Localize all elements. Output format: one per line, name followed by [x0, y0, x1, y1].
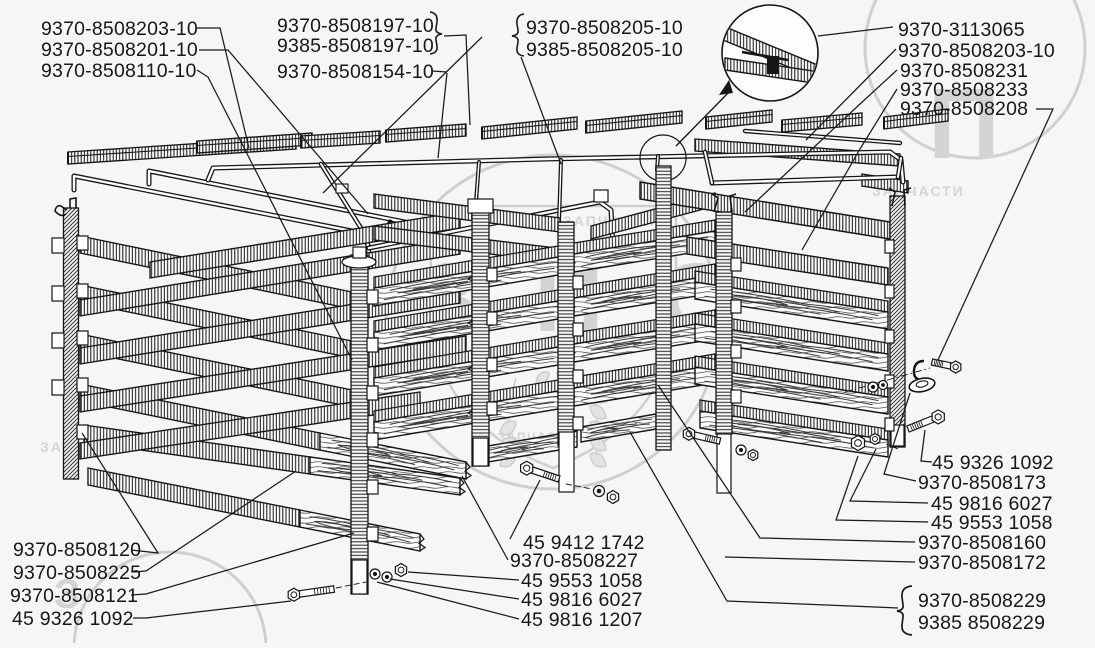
svg-text:9370-8508173: 9370-8508173: [918, 472, 1046, 494]
svg-text:9370-8508227: 9370-8508227: [510, 550, 638, 572]
svg-text:9370-8508201-10: 9370-8508201-10: [41, 39, 198, 61]
svg-text:9370-8508120: 9370-8508120: [13, 539, 141, 561]
svg-text:9370-3113065: 9370-3113065: [898, 19, 1025, 41]
svg-text:45 9816 6027: 45 9816 6027: [521, 589, 643, 611]
svg-text:45 9326 1092: 45 9326 1092: [932, 452, 1054, 474]
svg-text:9370-8508225: 9370-8508225: [13, 562, 141, 584]
svg-text:9370-8508172: 9370-8508172: [918, 552, 1046, 574]
svg-text:9370-8508121: 9370-8508121: [10, 585, 138, 607]
svg-text:9385-8508205-10: 9385-8508205-10: [526, 39, 683, 61]
svg-text:45 9816 1207: 45 9816 1207: [521, 609, 643, 631]
svg-text:45 9553 1058: 45 9553 1058: [931, 512, 1053, 534]
svg-text:9370-8508229: 9370-8508229: [918, 590, 1046, 612]
svg-text:9370-8508203-10: 9370-8508203-10: [898, 40, 1055, 62]
svg-text:9370-8508205-10: 9370-8508205-10: [526, 17, 683, 39]
svg-text:9385 8508229: 9385 8508229: [918, 612, 1045, 634]
svg-text:9370-8508110-10: 9370-8508110-10: [41, 60, 197, 82]
svg-text:9370-8508197-10: 9370-8508197-10: [277, 15, 434, 37]
svg-text:9385-8508197-10: 9385-8508197-10: [277, 35, 434, 57]
svg-text:9370-8508203-10: 9370-8508203-10: [41, 18, 198, 40]
svg-text:45 9326 1092: 45 9326 1092: [12, 608, 134, 630]
svg-text:9370-8508160: 9370-8508160: [918, 532, 1046, 554]
svg-text:9370-8508208: 9370-8508208: [900, 98, 1028, 120]
svg-text:9370-8508154-10: 9370-8508154-10: [277, 61, 434, 83]
